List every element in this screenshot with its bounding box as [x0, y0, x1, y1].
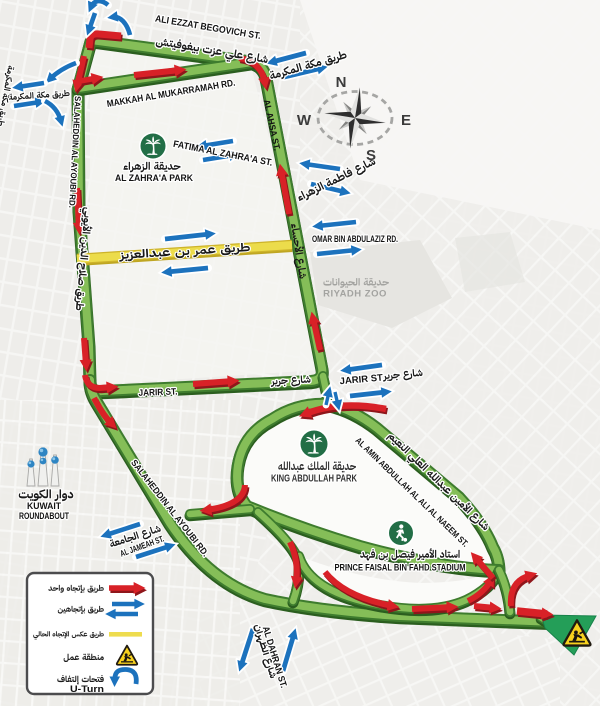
- svg-text:KUWAIT: KUWAIT: [27, 501, 61, 511]
- svg-text:AL ZAHRA'A PARK: AL ZAHRA'A PARK: [115, 173, 193, 183]
- svg-text:KING ABDULLAH PARK: KING ABDULLAH PARK: [271, 473, 357, 484]
- svg-text:U-Turn: U-Turn: [70, 684, 104, 695]
- svg-text:W: W: [297, 112, 312, 129]
- svg-text:PRINCE FAISAL BIN FAHD STADIUM: PRINCE FAISAL BIN FAHD STADIUM: [335, 562, 466, 573]
- svg-text:S: S: [366, 147, 376, 164]
- svg-text:JARIR ST.: JARIR ST.: [138, 387, 177, 398]
- svg-text:N: N: [336, 74, 347, 91]
- svg-text:E: E: [401, 112, 411, 129]
- svg-text:RIYADH ZOO: RIYADH ZOO: [323, 288, 387, 299]
- svg-text:ROUNDABOUT: ROUNDABOUT: [19, 511, 69, 521]
- svg-text:OMAR BIN ABDULAZIZ RD.: OMAR BIN ABDULAZIZ RD.: [312, 234, 398, 244]
